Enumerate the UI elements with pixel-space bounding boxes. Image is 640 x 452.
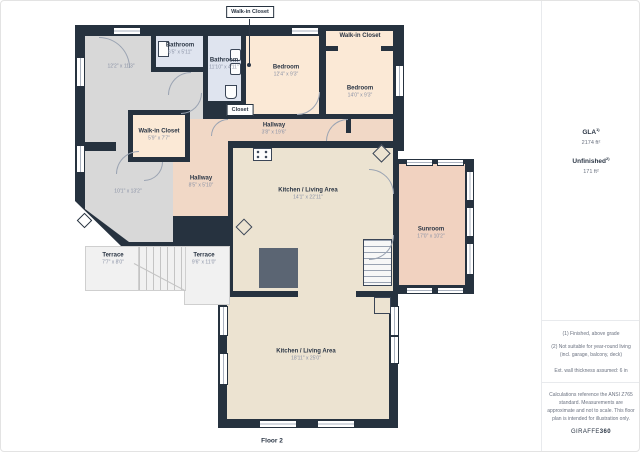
info-sidebar: GLA1) 2174 ft² Unfinished2) 171 ft² (1) … [541,1,640,452]
window [76,145,85,173]
window [466,243,474,275]
floorplan-canvas: Walk-in Closet Closet 12'2" x 11'3" Bath… [1,1,541,452]
room-label-hallway-1: Hallway 3'8" x 19'6" [262,122,287,137]
window [291,27,319,35]
room-opening [298,288,356,302]
floor-caption: Floor 2 [261,438,283,447]
room-label-wic-left: Walk-in Closet 5'9" x 7'7" [138,128,179,143]
brand-suffix: 360 [600,429,611,435]
unfinished-label: Unfinished2) [541,156,640,165]
room-sunroom [399,164,465,285]
window [76,57,85,87]
window [219,353,228,385]
toilet-icon [225,85,237,99]
window [219,306,228,336]
divider [541,1,542,452]
disclaimer-text: Calculations reference the ANSI Z765 sta… [546,391,636,423]
window [437,287,464,294]
window [390,306,399,336]
window [406,159,433,166]
floorplan-page: Walk-in Closet Closet 12'2" x 11'3" Bath… [0,0,640,452]
footnote-3: Ext. wall thickness assumed: 6 in [546,367,636,375]
window [390,336,399,364]
window [437,159,464,166]
room-label-terrace-2: Terrace 9'6" x 11'0" [192,252,216,267]
room-label-kitchen-upper: Kitchen / Living Area 14'1" x 22'11" [278,187,337,202]
window [317,420,355,428]
window [395,65,404,97]
room-label-bathroom-1: Bathroom 6'5" x 5'11" [166,42,194,57]
room-label-bedroom-1: Bedroom 12'4" x 9'3" [273,64,299,79]
footnote-1: (1) Finished, above grade [546,330,636,338]
window [406,287,433,294]
brand-logo: GIRAFFE360 [541,429,640,435]
divider [541,320,640,321]
wall-segment [326,46,338,51]
gla-label: GLA1) [541,127,640,136]
stairwell-block [259,248,298,288]
room-label-terrace-1: Terrace 7'7" x 8'0" [102,252,124,267]
room-label-kitchen-lower: Kitchen / Living Area 18'11" x 25'0" [276,348,335,363]
fireplace-icon [374,297,391,314]
room-label-hallway-2: Hallway 8'5" x 5'10" [189,175,214,190]
gla-value: 2174 ft² [541,140,640,146]
footnote-2: (2) Not suitable for year-round living (… [546,343,636,359]
gla-footnote-mark: 1) [596,127,600,132]
divider [541,382,640,383]
room-bedroom-2-wic [326,31,393,114]
unfinished-footnote-mark: 2) [606,156,610,161]
callout-closet: Closet [227,104,254,116]
room-label-bedroom-2: Bedroom 14'0" x 9'3" [347,85,373,100]
room-label-wic-top-right: Walk-in Closet [339,32,380,40]
callout-line [249,19,250,65]
room-label-bathroom-2: Bathroom 11'10" x 4'11" [209,57,238,72]
room-label-mid-left: 10'1" x 13'2" [114,189,141,196]
wall-segment [381,46,393,51]
window [259,420,297,428]
cooktop-icon [253,148,272,161]
window [466,171,474,201]
unfinished-value: 171 ft² [541,169,640,175]
window [466,207,474,237]
room-label-top-left: 12'2" x 11'3" [107,64,134,71]
window [113,27,141,35]
wall-segment [151,67,203,72]
area-summary: GLA1) 2174 ft² Unfinished2) 171 ft² [541,127,640,175]
callout-walk-in-closet: Walk-in Closet [226,6,274,18]
room-label-sunroom: Sunroom 17'0" x 10'2" [417,226,444,241]
callout-dot [247,63,251,67]
brand-name: GIRAFFE [571,429,600,435]
